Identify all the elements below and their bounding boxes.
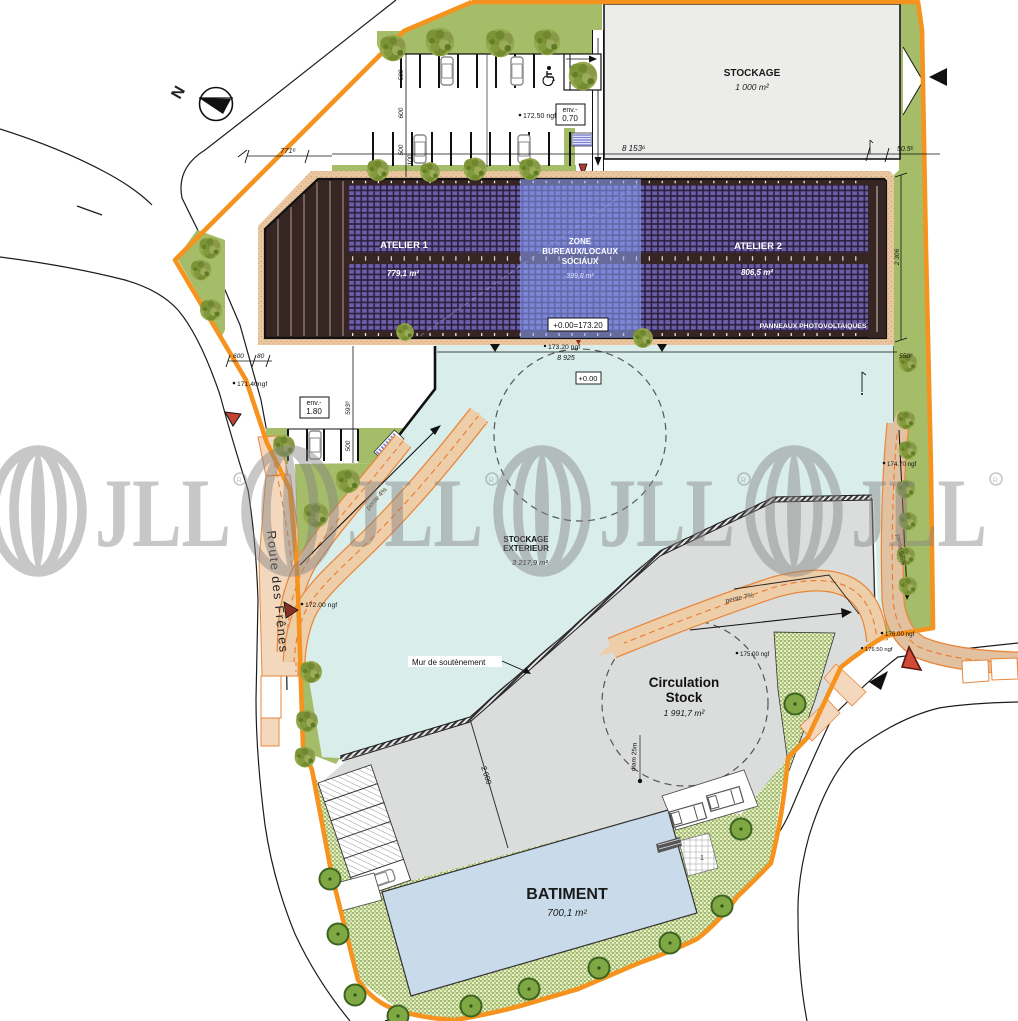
svg-text:JLL: JLL xyxy=(347,459,483,568)
svg-text:0.70: 0.70 xyxy=(562,114,578,123)
svg-text:PANNEAUX PHOTOVOLTAIQUES: PANNEAUX PHOTOVOLTAIQUES xyxy=(760,323,867,330)
svg-text:500: 500 xyxy=(398,69,405,80)
svg-text:771⁶: 771⁶ xyxy=(280,146,296,155)
svg-text:600: 600 xyxy=(233,353,244,360)
svg-text:ATELIER 2: ATELIER 2 xyxy=(734,241,782,252)
svg-text:176.50 ngf: 176.50 ngf xyxy=(865,647,893,653)
svg-text:80: 80 xyxy=(257,353,265,360)
svg-text:700,1 m²: 700,1 m² xyxy=(547,908,587,919)
svg-text:1 991,7 m²: 1 991,7 m² xyxy=(664,708,706,718)
svg-text:600: 600 xyxy=(398,107,405,118)
svg-text:env.-: env.- xyxy=(562,107,578,114)
svg-text:1 000 m²: 1 000 m² xyxy=(735,82,770,92)
svg-text:+0.00=173.20: +0.00=173.20 xyxy=(553,321,603,330)
svg-text:2 306: 2 306 xyxy=(894,248,901,266)
svg-text:1: 1 xyxy=(700,855,704,862)
svg-text:172.50 ngf: 172.50 ngf xyxy=(523,113,556,120)
svg-text:593⁸: 593⁸ xyxy=(345,401,352,415)
svg-text:806,5 m²: 806,5 m² xyxy=(741,268,773,277)
svg-text:1.80: 1.80 xyxy=(306,407,322,416)
svg-text:100: 100 xyxy=(407,154,414,165)
svg-text:Circulation: Circulation xyxy=(649,675,720,690)
svg-text:172.00 ngf: 172.00 ngf xyxy=(305,602,337,609)
svg-text:500: 500 xyxy=(398,144,405,155)
svg-text:STOCKAGE: STOCKAGE xyxy=(724,68,781,79)
svg-text:176.00 ngf: 176.00 ngf xyxy=(885,631,915,638)
svg-text:Mur de soutènement: Mur de soutènement xyxy=(412,658,486,667)
svg-text:env.-: env.- xyxy=(306,400,322,407)
svg-text:779,1 m²: 779,1 m² xyxy=(387,269,419,278)
svg-text:BATIMENT: BATIMENT xyxy=(526,886,608,903)
svg-text:R: R xyxy=(489,476,495,485)
svg-text:SOCIAUX: SOCIAUX xyxy=(562,257,599,266)
svg-text:550⁸: 550⁸ xyxy=(899,353,913,360)
svg-text:8 925: 8 925 xyxy=(557,355,575,362)
svg-text:ATELIER 1: ATELIER 1 xyxy=(380,240,429,251)
svg-text:175.00 ngf: 175.00 ngf xyxy=(740,651,770,658)
svg-text:ZONE: ZONE xyxy=(569,237,592,246)
svg-text:diam 25m: diam 25m xyxy=(630,742,638,771)
svg-text:173.20 ngf: 173.20 ngf xyxy=(548,344,580,351)
svg-text:399,8 m²: 399,8 m² xyxy=(566,273,594,280)
svg-text:50.5⁶: 50.5⁶ xyxy=(897,146,914,153)
svg-text:171.40ngf: 171.40ngf xyxy=(237,381,267,388)
svg-text:8 153⁶: 8 153⁶ xyxy=(622,144,646,153)
svg-text:BUREAUX/LOCAUX: BUREAUX/LOCAUX xyxy=(542,247,618,256)
svg-text:500: 500 xyxy=(345,440,352,451)
svg-text:Stock: Stock xyxy=(666,690,703,705)
svg-text:+0.00: +0.00 xyxy=(579,374,598,383)
